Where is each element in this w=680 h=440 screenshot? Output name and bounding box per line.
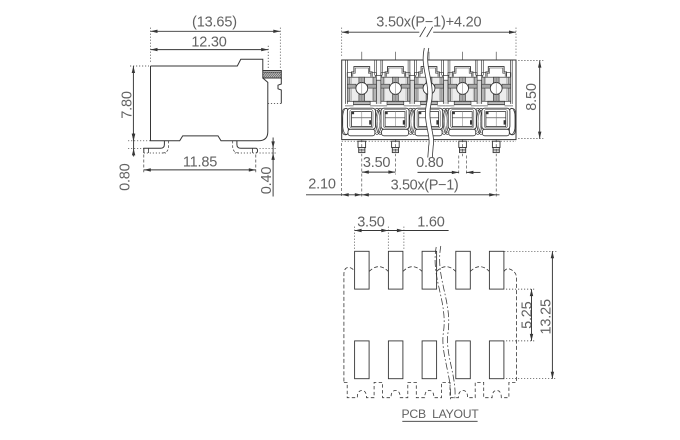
svg-text:13.25: 13.25 <box>538 299 554 334</box>
svg-text:3.50: 3.50 <box>363 155 391 171</box>
svg-text:7.80: 7.80 <box>119 91 135 119</box>
svg-text:0.80: 0.80 <box>416 155 444 171</box>
svg-text:3.50: 3.50 <box>357 214 385 230</box>
svg-text:5.25: 5.25 <box>519 301 535 329</box>
svg-text:(13.65): (13.65) <box>192 15 237 31</box>
svg-text:1.60: 1.60 <box>417 214 445 230</box>
svg-text:2.10: 2.10 <box>308 177 336 193</box>
svg-text:11.85: 11.85 <box>183 155 217 171</box>
svg-text:3.50x(P−1): 3.50x(P−1) <box>391 177 459 193</box>
svg-text:PCB LAYOUT: PCB LAYOUT <box>402 407 480 421</box>
svg-text:8.50: 8.50 <box>524 83 540 111</box>
svg-text:3.50x(P−1)+4.20: 3.50x(P−1)+4.20 <box>376 15 481 31</box>
svg-text:12.30: 12.30 <box>191 34 226 50</box>
svg-text:0.80: 0.80 <box>117 163 133 191</box>
